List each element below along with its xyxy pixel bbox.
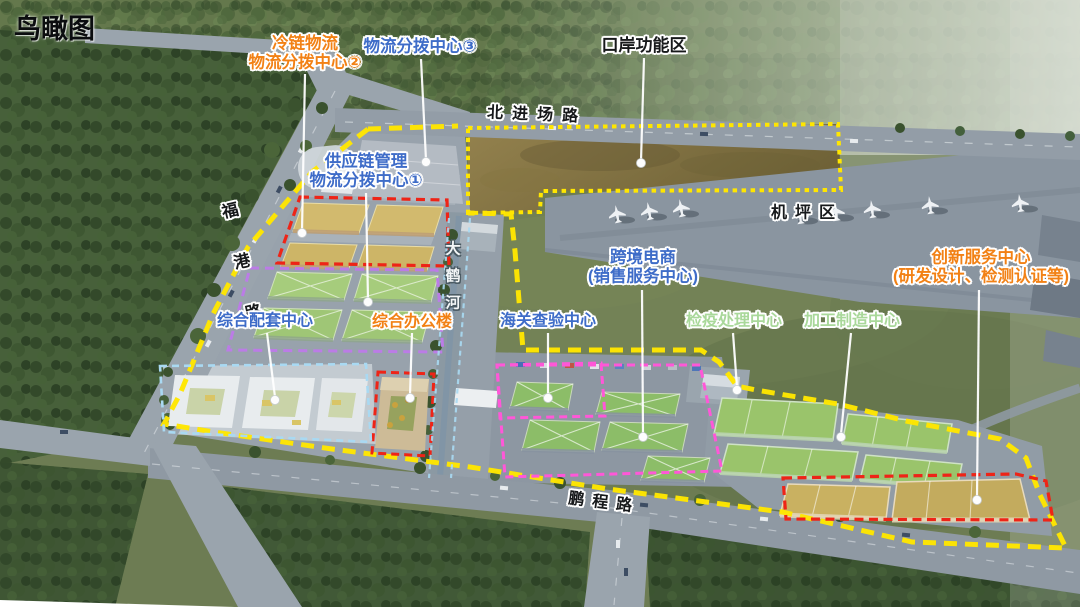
- aerial-view: 鸟瞰图 冷链物流 物流分拨中心② 物流分拨中心③ 口岸功能区 北进场路 供应链管…: [0, 0, 1080, 607]
- leader-cross-border: [642, 290, 643, 434]
- support-center-campus: [168, 375, 368, 432]
- office-building: [375, 377, 429, 451]
- innovation-buildings: [780, 479, 1030, 520]
- aerial-rendering: [0, 0, 1080, 607]
